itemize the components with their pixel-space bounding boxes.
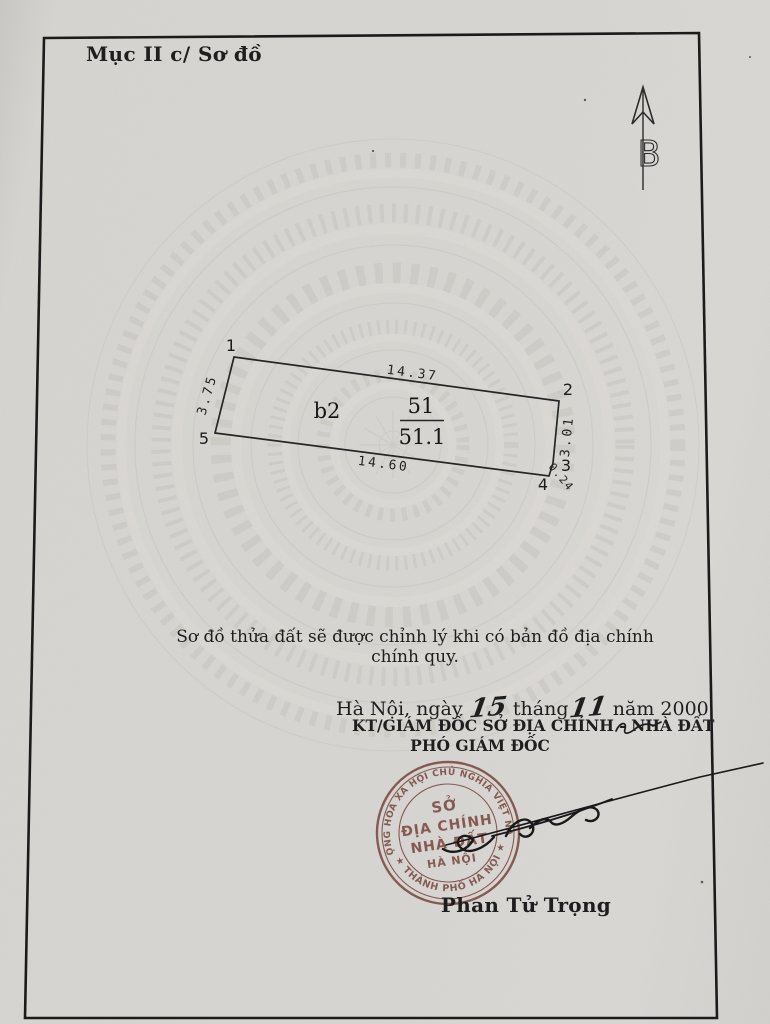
vertex-label-1: 1 bbox=[226, 336, 236, 355]
approver-role: PHÓ GIÁM ĐỐC bbox=[352, 736, 608, 755]
signer-name: Phan Tử Trọng bbox=[426, 893, 626, 917]
section-title: Mục II c/ Sơ đồ bbox=[86, 42, 262, 66]
page-graphics: B 1 2 3 4 5 14.37 14.60 3.75 3.01 0.24 b… bbox=[0, 0, 770, 1024]
north-letter: B bbox=[638, 134, 660, 175]
vertex-label-4: 4 bbox=[538, 475, 548, 494]
note-line: Sơ đồ thửa đất sẽ được chỉnh lý khi có b… bbox=[150, 627, 680, 667]
parcel-area: 51.1 bbox=[399, 425, 446, 449]
parcel-number: 51 bbox=[408, 394, 435, 418]
vertex-label-5: 5 bbox=[199, 429, 209, 448]
block-label: b2 bbox=[314, 399, 341, 423]
approver-title: KT/GIÁM ĐỐC SỞ ĐỊA CHÍNH - NHÀ ĐẤT bbox=[352, 716, 642, 735]
scanned-page: B 1 2 3 4 5 14.37 14.60 3.75 3.01 0.24 b… bbox=[0, 0, 770, 1024]
vertex-label-2: 2 bbox=[563, 380, 573, 399]
